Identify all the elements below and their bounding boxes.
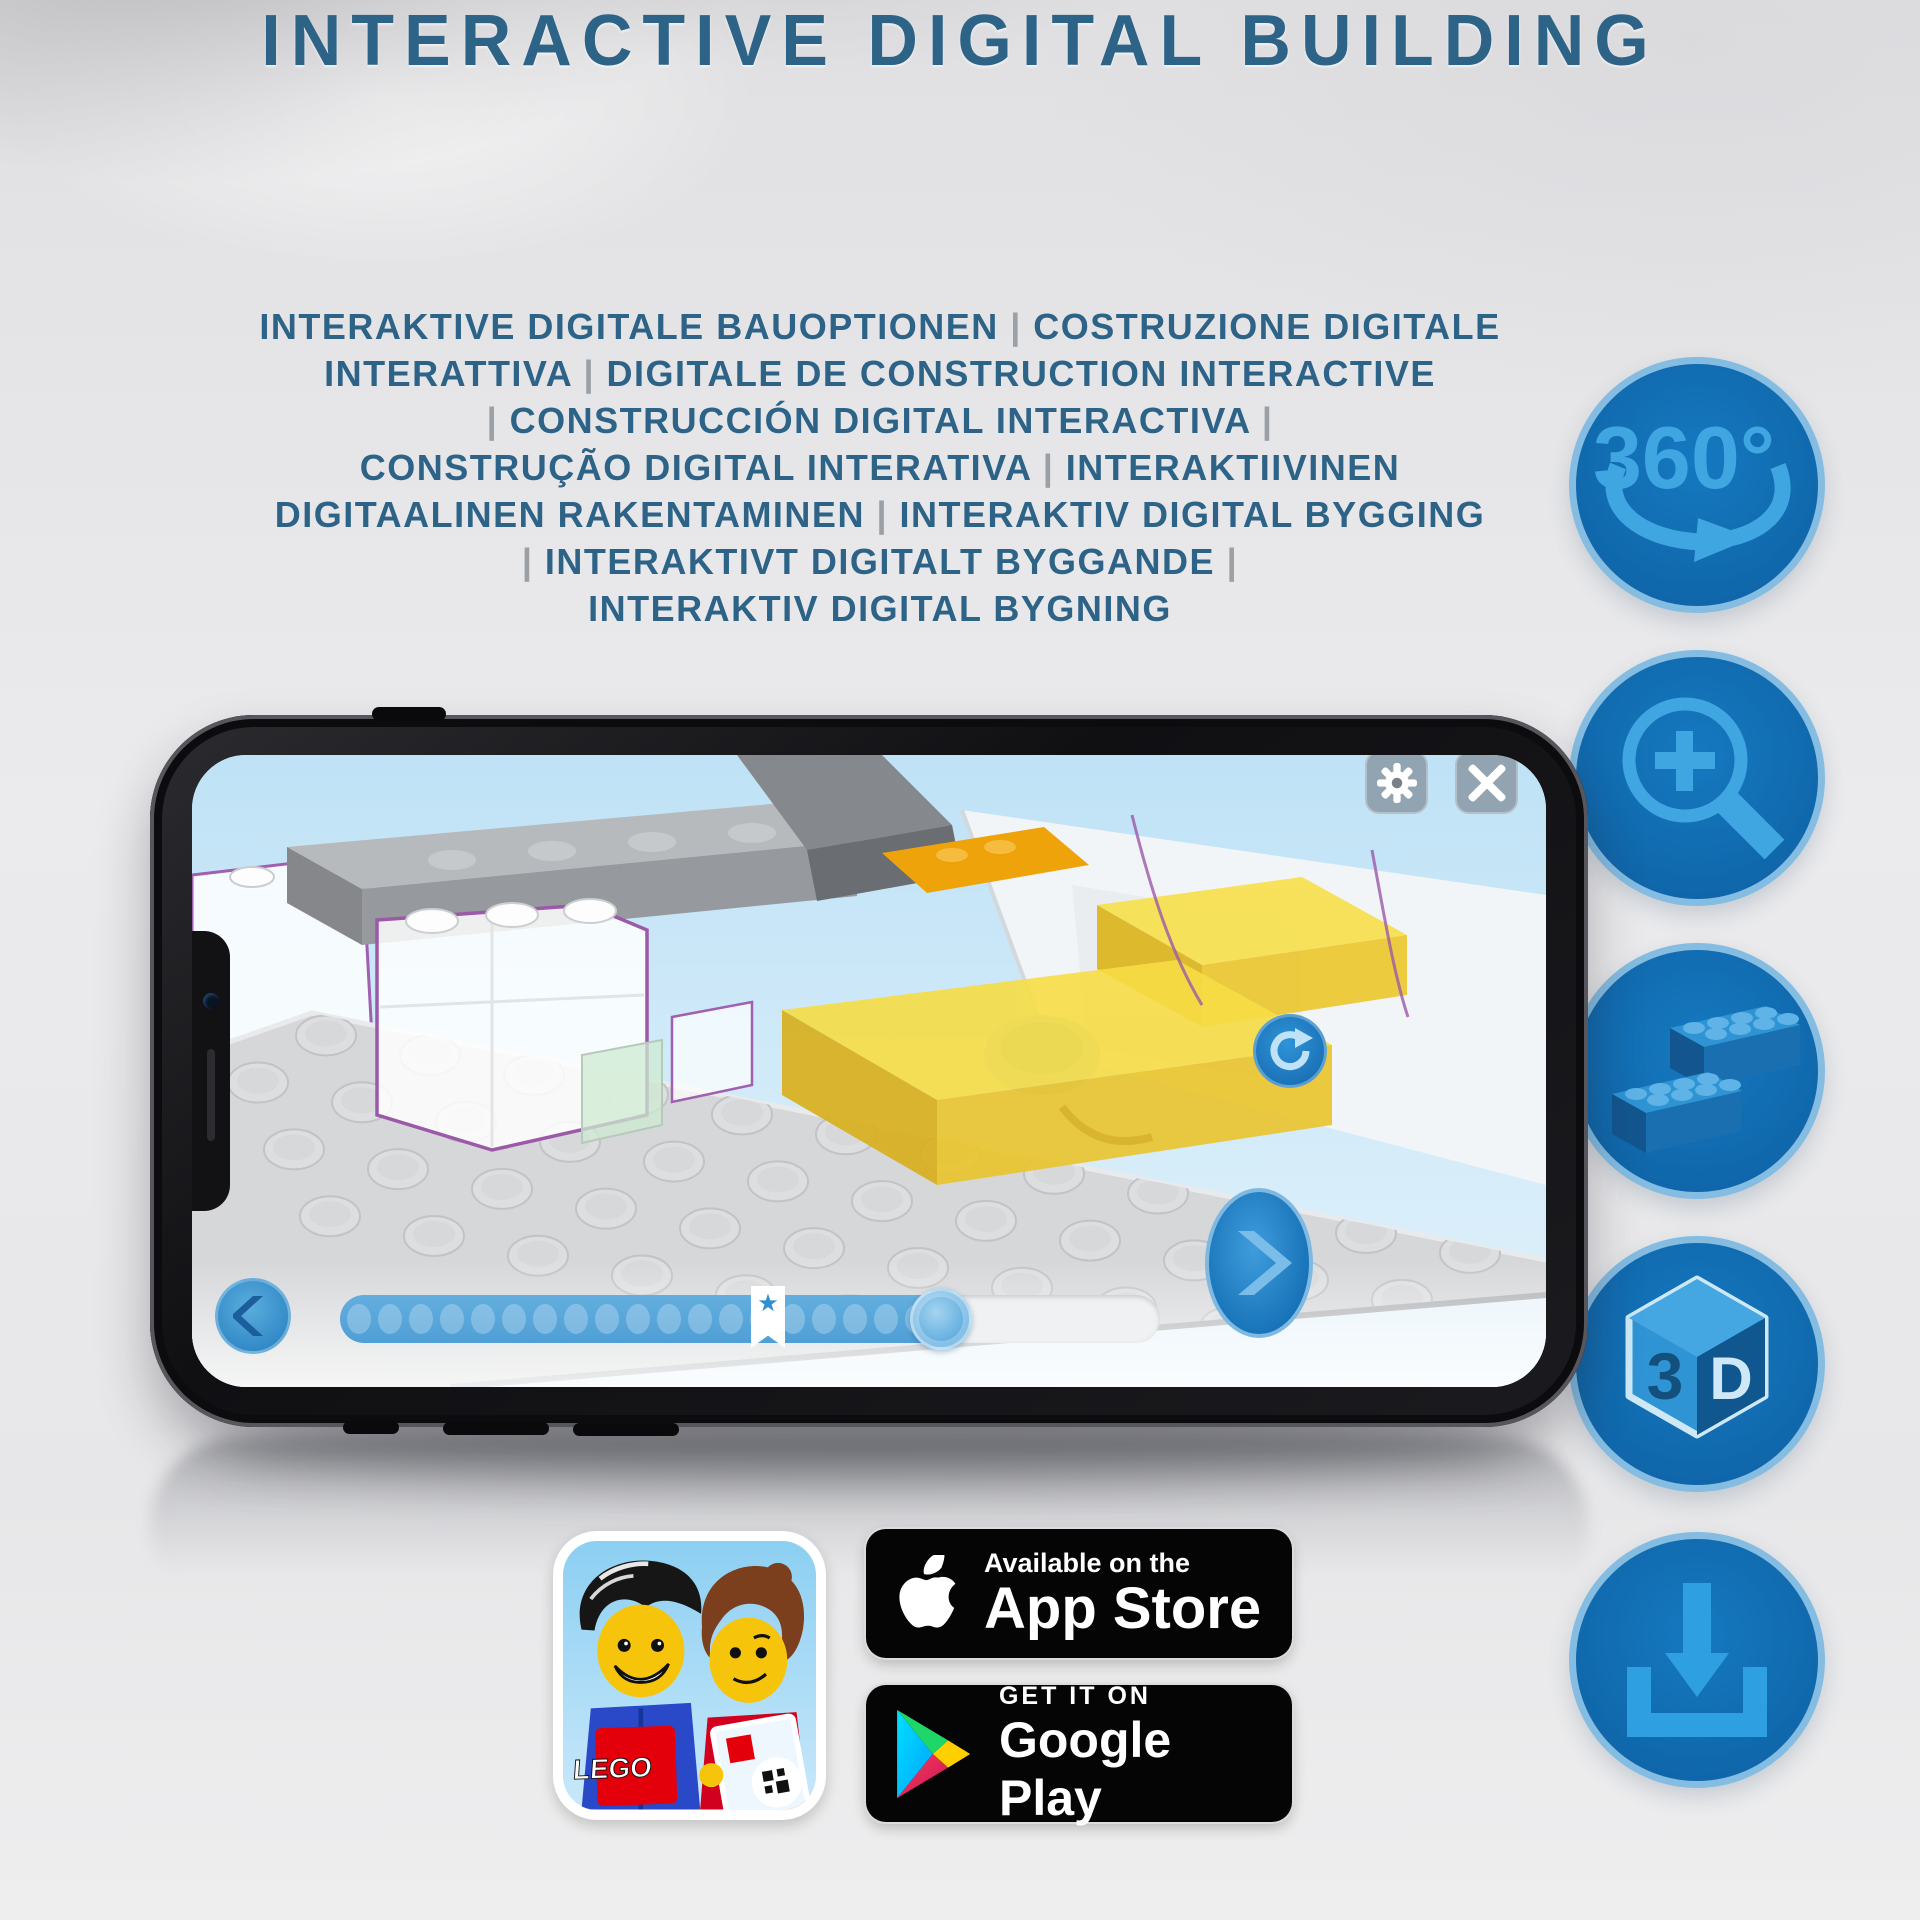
step-dots [340,1304,929,1334]
phone-notch [192,931,230,1211]
subtitle-line: INTERATTIVA | DIGITALE DE CONSTRUCTION I… [170,350,1590,397]
smartphone: ★ [150,715,1588,1427]
chevron-right-icon [1224,1215,1294,1311]
earpiece-speaker [207,1049,215,1141]
close-button[interactable] [1455,755,1518,814]
lego-minifigures-art: LEGO [563,1541,816,1810]
marketing-page: INTERACTIVE DIGITAL BUILDING INTERAKTIVE… [0,0,1920,1920]
subtitle-line: INTERAKTIV DIGITAL BYGNING [170,585,1590,632]
chevron-left-icon [233,1290,273,1342]
phone-screen: ★ [192,755,1546,1387]
front-camera [203,993,219,1009]
feature-download-icon [1569,1532,1825,1788]
lego-logo-text: LEGO [572,1751,653,1785]
feature-bricks-icon [1569,943,1825,1199]
power-button [372,707,446,721]
download-icon [1582,1545,1812,1775]
feature-zoom-icon [1569,650,1825,906]
next-step-button[interactable] [1205,1188,1313,1338]
rotate-view-button[interactable] [1253,1014,1327,1088]
previous-step-button[interactable] [215,1278,291,1354]
zoom-in-icon [1582,663,1812,893]
multilingual-subtitle: INTERAKTIVE DIGITALE BAUOPTIONEN | COSTR… [170,303,1590,632]
3d-label-d: D [1709,1345,1752,1412]
lego-app-icon[interactable]: LEGO [553,1531,826,1820]
google-play-tagline: GET IT ON [999,1681,1278,1711]
app-store-badge[interactable]: Available on the App Store [866,1529,1292,1658]
app-store-label: App Store [984,1578,1261,1640]
google-play-label: Google Play [999,1711,1278,1827]
page-title: INTERACTIVE DIGITAL BUILDING [0,0,1920,82]
lego-3d-scene[interactable] [192,755,1546,1387]
close-icon [1467,763,1507,803]
lego-bricks-icon [1582,956,1812,1186]
app-store-tagline: Available on the [984,1548,1261,1578]
3d-cube-icon: 3 D [1582,1249,1812,1479]
build-progress-slider[interactable]: ★ [340,1295,1160,1343]
volume-down-button [573,1423,679,1436]
mute-switch [343,1421,399,1434]
subtitle-line: | CONSTRUCCIÓN DIGITAL INTERACTIVA | [170,397,1590,444]
volume-up-button [443,1422,549,1435]
settings-button[interactable] [1365,755,1428,814]
subtitle-line: DIGITAALINEN RAKENTAMINEN | INTERAKTIV D… [170,491,1590,538]
slider-thumb[interactable] [910,1288,972,1350]
google-play-badge[interactable]: GET IT ON Google Play [866,1685,1292,1822]
back-brick [1670,1006,1800,1087]
3d-label-3: 3 [1647,1339,1684,1413]
gear-icon [1376,762,1418,804]
subtitle-line: | INTERAKTIVT DIGITALT BYGGANDE | [170,538,1590,585]
feature-3d-icon: 3 D [1569,1236,1825,1492]
rotate-icon [1265,1026,1315,1076]
feature-360-icon: 360° [1569,357,1825,613]
subtitle-line: CONSTRUÇÃO DIGITAL INTERATIVA | INTERAKT… [170,444,1590,491]
subtitle-line: INTERAKTIVE DIGITALE BAUOPTIONEN | COSTR… [170,303,1590,350]
slider-fill [340,1295,944,1343]
apple-icon [896,1555,962,1633]
front-brick [1612,1072,1742,1153]
360-degrees-icon: 360° [1582,370,1812,600]
google-play-icon [892,1705,977,1803]
